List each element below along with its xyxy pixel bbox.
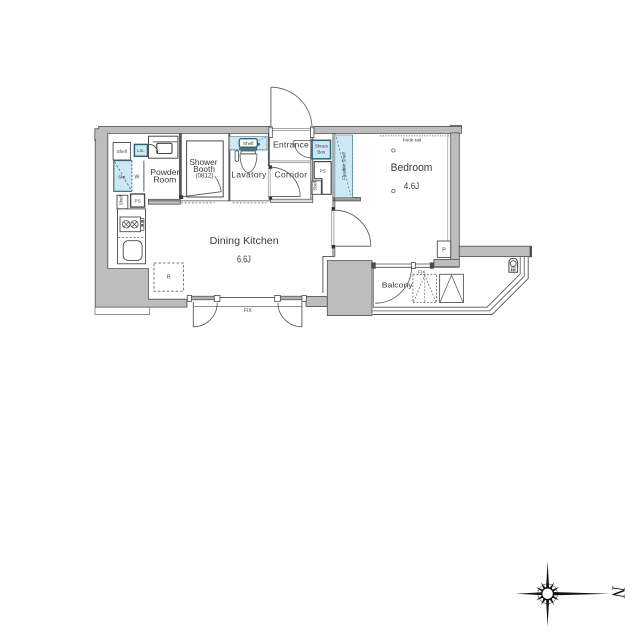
- svg-text:Shelf: Shelf: [118, 195, 123, 206]
- svg-text:(0812): (0812): [196, 173, 214, 180]
- svg-text:Box: Box: [317, 150, 326, 155]
- svg-text:Balcony: Balcony: [382, 280, 413, 289]
- svg-text:Lin.: Lin.: [137, 148, 144, 153]
- svg-text:Shoes: Shoes: [315, 144, 329, 149]
- svg-text:PS: PS: [320, 169, 326, 174]
- svg-text:W: W: [134, 175, 139, 181]
- svg-text:PS: PS: [135, 198, 141, 203]
- svg-text:FIX: FIX: [418, 270, 425, 275]
- svg-text:Bedroom: Bedroom: [391, 162, 433, 174]
- svg-text:Corridor: Corridor: [275, 169, 308, 179]
- svg-text:Shelf: Shelf: [313, 180, 318, 190]
- svg-text:P: P: [442, 248, 446, 254]
- svg-text:Shelf: Shelf: [117, 149, 128, 154]
- svg-text:Entrance: Entrance: [273, 140, 309, 150]
- svg-text:6.6J: 6.6J: [237, 255, 251, 266]
- svg-text:Flexible Shelf: Flexible Shelf: [342, 151, 347, 179]
- svg-text:Shelf: Shelf: [243, 141, 254, 146]
- svg-text:R: R: [167, 275, 171, 281]
- svg-text:FIX: FIX: [244, 308, 252, 314]
- svg-text:Room: Room: [153, 175, 176, 185]
- svg-text:4.6J: 4.6J: [404, 181, 420, 191]
- svg-text:Lavatory: Lavatory: [231, 169, 267, 179]
- svg-text:Sto.: Sto.: [118, 174, 127, 180]
- svg-text:N: N: [609, 585, 629, 599]
- svg-text:Dining Kitchen: Dining Kitchen: [210, 236, 279, 247]
- svg-text:hook rail: hook rail: [403, 138, 421, 144]
